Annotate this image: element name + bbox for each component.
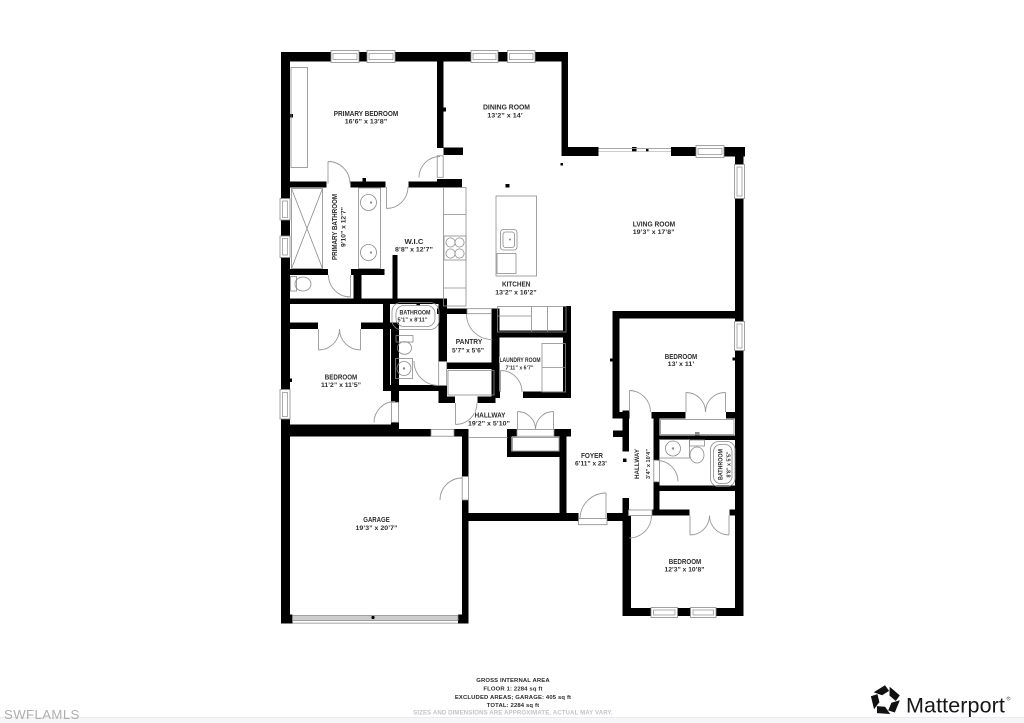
svg-text:®: ®: [1007, 696, 1011, 703]
svg-text:3’4” x 10’4”: 3’4” x 10’4”: [646, 449, 652, 479]
svg-text:13’2” x 14’: 13’2” x 14’: [487, 112, 523, 119]
svg-text:DINING ROOM: DINING ROOM: [483, 103, 530, 112]
svg-text:BEDROOM: BEDROOM: [669, 557, 701, 566]
svg-text:TOTAL: 2284 sq ft: TOTAL: 2284 sq ft: [487, 703, 539, 709]
svg-text:16’6” x 13’8”: 16’6” x 13’8”: [345, 119, 388, 126]
svg-text:PANTRY: PANTRY: [456, 337, 483, 346]
svg-text:5’1” x 8’11”: 5’1” x 8’11”: [398, 317, 428, 323]
svg-text:11’2” x 11’5”: 11’2” x 11’5”: [321, 382, 361, 389]
svg-text:KITCHEN: KITCHEN: [502, 280, 531, 289]
svg-text:5’7” x 5’6”: 5’7” x 5’6”: [452, 347, 484, 354]
svg-text:HALLWAY: HALLWAY: [634, 448, 641, 479]
svg-text:6’11” x 23’: 6’11” x 23’: [575, 460, 607, 467]
svg-text:19’3” x 17’8”: 19’3” x 17’8”: [633, 229, 675, 236]
svg-text:PRIMARY BATHROOM: PRIMARY BATHROOM: [330, 194, 339, 260]
svg-text:FOYER: FOYER: [581, 451, 604, 460]
svg-text:BEDROOM: BEDROOM: [325, 373, 357, 382]
svg-text:W.I.C: W.I.C: [405, 237, 425, 246]
svg-text:LVING ROOM: LVING ROOM: [633, 220, 676, 229]
svg-text:19’2” x 5’10”: 19’2” x 5’10”: [468, 420, 510, 427]
svg-text:LAUNDRY ROOM: LAUNDRY ROOM: [500, 357, 541, 364]
svg-text:FLOOR 1: 2284 sq ft: FLOOR 1: 2284 sq ft: [483, 687, 542, 693]
svg-text:8’8” x 5’5”: 8’8” x 5’5”: [727, 451, 733, 477]
svg-text:Matterport: Matterport: [906, 694, 1005, 718]
svg-text:19’3” x 20’7”: 19’3” x 20’7”: [356, 525, 398, 532]
svg-text:PRIMARY BEDROOM: PRIMARY BEDROOM: [334, 109, 399, 118]
svg-text:BATHROOM: BATHROOM: [400, 309, 431, 316]
svg-text:SIZES AND DIMENSIONS ARE APPRO: SIZES AND DIMENSIONS ARE APPROXIMATE, AC…: [413, 710, 613, 717]
svg-text:8’8” x 12’7”: 8’8” x 12’7”: [395, 246, 433, 253]
svg-text:9’10” x 12’7”: 9’10” x 12’7”: [341, 207, 348, 247]
svg-text:GARAGE: GARAGE: [363, 515, 390, 524]
svg-text:SWFLAMLS: SWFLAMLS: [4, 707, 80, 722]
svg-text:EXCLUDED AREAS; GARAGE: 405 sq: EXCLUDED AREAS; GARAGE: 405 sq ft: [455, 695, 571, 701]
svg-text:13’ x 11’: 13’ x 11’: [668, 361, 695, 368]
svg-text:12’3” x 10’8”: 12’3” x 10’8”: [665, 566, 705, 573]
svg-text:HALLWAY: HALLWAY: [475, 410, 506, 419]
svg-text:7’11” x 6’7”: 7’11” x 6’7”: [506, 365, 534, 371]
svg-text:BEDROOM: BEDROOM: [665, 352, 697, 361]
svg-text:13’2” x 16’2”: 13’2” x 16’2”: [495, 290, 536, 297]
svg-text:BATHROOM: BATHROOM: [718, 449, 725, 480]
svg-text:GROSS INTERNAL AREA: GROSS INTERNAL AREA: [476, 678, 550, 684]
